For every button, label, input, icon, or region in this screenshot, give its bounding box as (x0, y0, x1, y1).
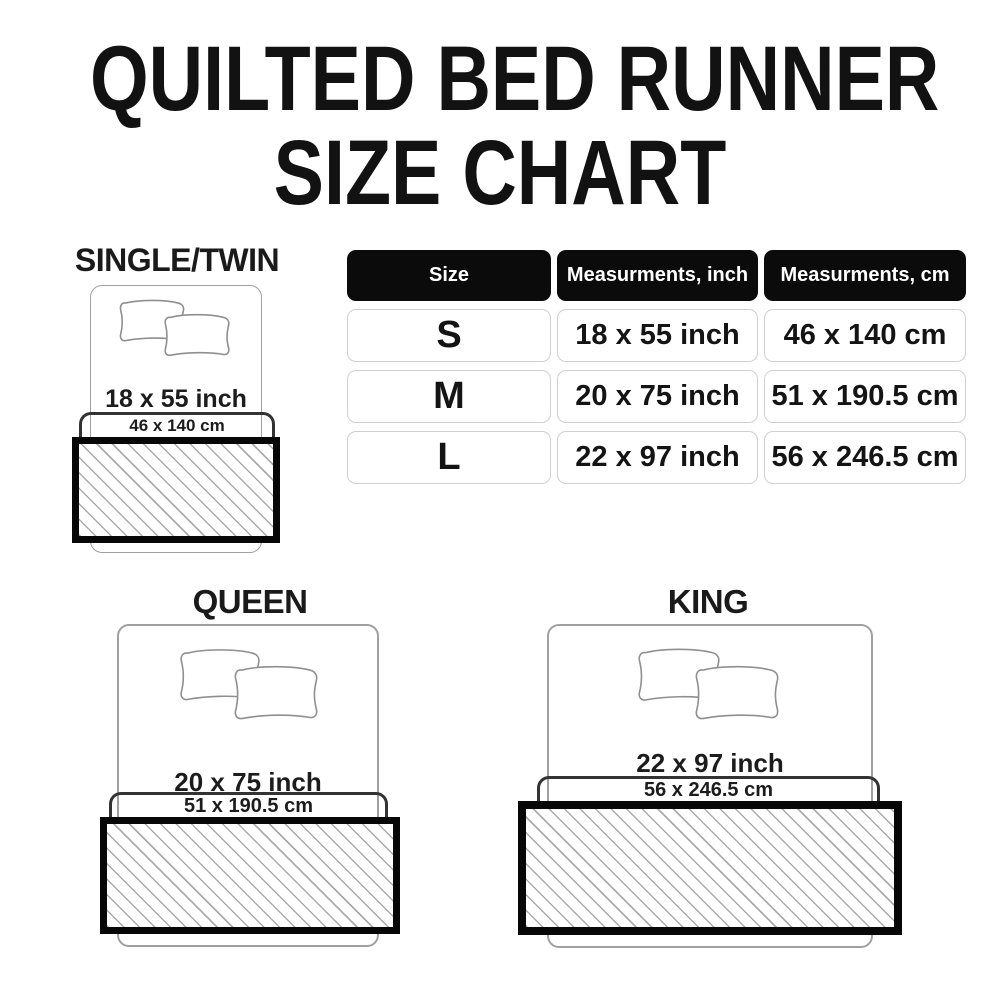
queen-runner-swatch (100, 817, 400, 934)
table-header-size: Size (347, 250, 551, 301)
king-width-bracket: 56 x 246.5 cm (537, 776, 880, 801)
table-header-cm: Measurments, cm (764, 250, 966, 301)
single-pillows-illustration (110, 291, 238, 366)
pillow-right-icon (235, 667, 316, 719)
pillow-right-icon (696, 667, 777, 719)
table-cell-cm-m: 51 x 190.5 cm (764, 370, 966, 423)
table-cell-inch-l: 22 x 97 inch (557, 431, 758, 484)
table-header-inch: Measurments, inch (557, 250, 758, 301)
king-inch-measurement: 22 x 97 inch (547, 750, 873, 776)
queen-cm-measurement: 51 x 190.5 cm (112, 795, 385, 818)
pillow-right-icon (165, 315, 229, 356)
table-cell-cm-s: 46 x 140 cm (764, 309, 966, 362)
queen-pillows-illustration (170, 640, 326, 730)
table-cell-inch-s: 18 x 55 inch (557, 309, 758, 362)
section-label-queen: QUEEN (150, 584, 350, 620)
section-label-single-twin: SINGLE/TWIN (52, 242, 302, 278)
table-cell-cm-l: 56 x 246.5 cm (764, 431, 966, 484)
single-width-bracket: 46 x 140 cm (79, 412, 275, 437)
table-cell-size-s: S (347, 309, 551, 362)
king-pillows-illustration (628, 640, 786, 730)
king-cm-measurement: 56 x 246.5 cm (540, 779, 877, 802)
single-inch-measurement: 18 x 55 inch (90, 386, 262, 412)
size-chart-page: QUILTED BED RUNNER SIZE CHART SINGLE/TWI… (0, 0, 1000, 1000)
table-cell-size-l: L (347, 431, 551, 484)
single-cm-measurement: 46 x 140 cm (82, 415, 272, 436)
section-label-king: KING (608, 584, 808, 620)
king-runner-swatch (518, 801, 902, 935)
size-table: Size Measurments, inch Measurments, cm S… (347, 250, 966, 484)
page-title-line2: SIZE CHART (90, 126, 910, 220)
queen-width-bracket: 51 x 190.5 cm (109, 792, 388, 817)
table-cell-size-m: M (347, 370, 551, 423)
single-runner-swatch (72, 437, 280, 543)
table-cell-inch-m: 20 x 75 inch (557, 370, 758, 423)
page-title-line1: QUILTED BED RUNNER (90, 32, 910, 126)
